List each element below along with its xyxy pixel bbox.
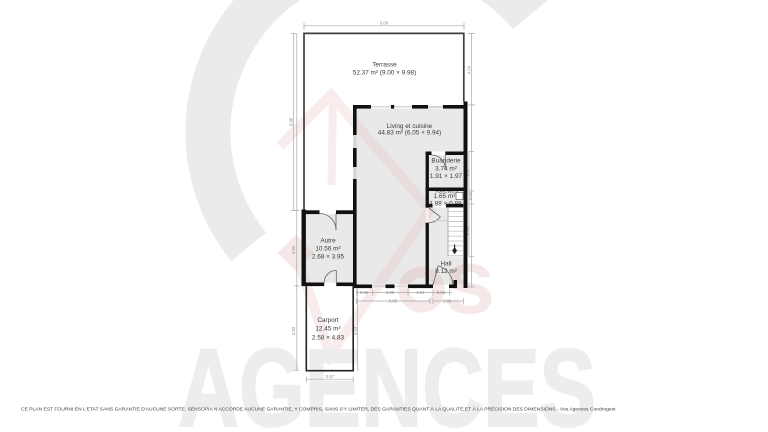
- svg-text:0.96: 0.96: [360, 290, 369, 295]
- svg-text:Carport: Carport: [317, 317, 339, 324]
- svg-text:12.45 m²: 12.45 m²: [315, 326, 340, 333]
- svg-text:CE PLAN EST FOURNI EN L'ETAT S: CE PLAN EST FOURNI EN L'ETAT SANS GARANT…: [21, 406, 616, 413]
- svg-text:2.68 × 3.95: 2.68 × 3.95: [312, 253, 345, 260]
- svg-text:1.91 × 1.97: 1.91 × 1.97: [430, 173, 463, 180]
- svg-text:44.83 m² (6.05 × 9.94): 44.83 m² (6.05 × 9.94): [378, 129, 441, 136]
- svg-text:9.00: 9.00: [380, 21, 389, 26]
- svg-text:1.65 m²: 1.65 m²: [434, 193, 456, 200]
- svg-text:Buanderie: Buanderie: [431, 157, 461, 164]
- svg-text:52.37 m² (9.00 × 9.98): 52.37 m² (9.00 × 9.98): [353, 69, 416, 76]
- svg-text:9.98: 9.98: [289, 117, 294, 126]
- svg-text:6.00: 6.00: [389, 299, 398, 304]
- svg-text:9.94: 9.94: [468, 191, 473, 200]
- svg-text:Autre: Autre: [320, 237, 336, 244]
- svg-text:8.12 m²: 8.12 m²: [435, 268, 457, 275]
- svg-text:AGENCES: AGENCES: [178, 327, 596, 432]
- svg-text:2.00: 2.00: [386, 290, 395, 295]
- svg-text:1.86: 1.86: [443, 299, 452, 304]
- svg-text:10.56 m²: 10.56 m²: [315, 245, 340, 252]
- svg-text:2.58 × 4.83: 2.58 × 4.83: [312, 334, 345, 341]
- svg-text:4.04: 4.04: [467, 65, 472, 74]
- svg-text:3.95: 3.95: [291, 245, 296, 254]
- svg-text:1.01: 1.01: [416, 290, 425, 295]
- svg-text:Terrasse: Terrasse: [372, 62, 397, 69]
- svg-text:3.74 m²: 3.74 m²: [435, 165, 457, 172]
- svg-text:2.57: 2.57: [326, 374, 335, 379]
- svg-text:4.83: 4.83: [291, 326, 296, 335]
- svg-text:0.94: 0.94: [437, 290, 446, 295]
- svg-text:Hall: Hall: [440, 260, 451, 267]
